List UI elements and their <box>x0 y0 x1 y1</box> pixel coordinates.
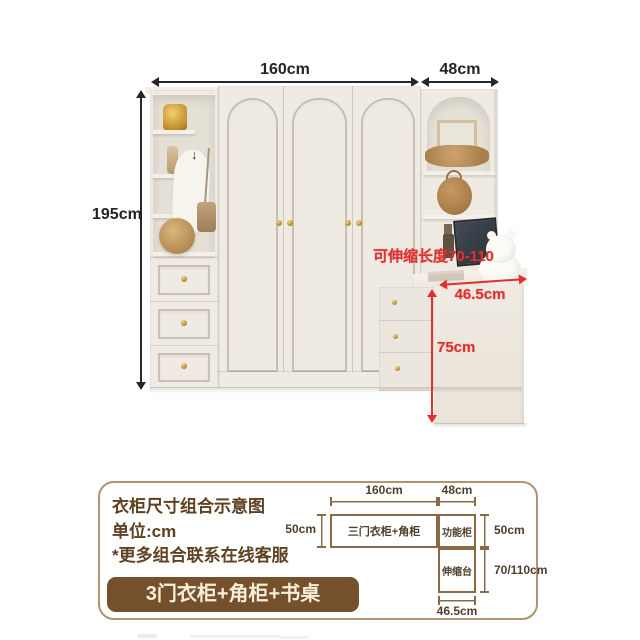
extendable-length-note: 可伸缩长度70-110 <box>373 245 494 266</box>
card-unit-line: 单位:cm <box>112 517 176 542</box>
diagram-desk-rect: 伸缩台 <box>438 548 476 593</box>
card-title: 衣柜尺寸组合示意图 <box>112 492 265 517</box>
desk-depth-label: 46.5cm <box>450 286 510 303</box>
desk-shadow <box>434 423 526 428</box>
diagram-main-width-line <box>330 497 438 506</box>
main-width-label: 160cm <box>153 61 417 79</box>
gold-knob <box>181 276 187 282</box>
display-shelf <box>153 252 215 256</box>
gold-knob <box>345 220 351 226</box>
gold-knob <box>392 300 397 305</box>
gold-knob <box>393 334 398 339</box>
display-shelf <box>153 130 195 134</box>
desk-drawer-line <box>379 352 434 353</box>
height-dimension-line <box>140 92 142 388</box>
desk-drawer-line <box>379 320 434 321</box>
diagram-wardrobe-rect: 三门衣柜+角柜 <box>330 514 438 548</box>
door-arch-panel <box>292 98 347 372</box>
side-width-dimension-line <box>423 81 497 83</box>
diagram-function-cabinet-rect: 功能柜 <box>438 514 476 548</box>
gold-knob <box>356 220 362 226</box>
gold-knob <box>287 220 293 226</box>
combo-option-button[interactable]: 3门衣柜+角柜+书桌 <box>107 577 359 612</box>
desk-height-dimension-line <box>431 291 433 421</box>
door-separator <box>352 86 353 372</box>
decor-leopard-sculpture <box>425 145 489 167</box>
cropped-next-section-artifact <box>137 634 157 638</box>
gold-knob <box>181 320 187 326</box>
door-separator <box>283 86 284 372</box>
diagram-left-height-label: 50cm <box>284 522 316 536</box>
cropped-next-section-artifact <box>190 635 282 638</box>
hook-arrow-icon: ↓ <box>191 147 198 162</box>
diagram-main-width-label: 160cm <box>330 483 438 497</box>
desk-height-label: 75cm <box>437 339 475 356</box>
decor-hanging-bag <box>197 202 216 232</box>
side-width-label: 48cm <box>423 61 497 79</box>
gold-knob <box>276 220 282 226</box>
diagram-left-height-line <box>317 514 326 548</box>
diagram-desk-width-label: 46.5cm <box>424 604 490 618</box>
diagram-right-height-line-bottom <box>480 548 489 593</box>
cropped-next-section-artifact <box>278 636 308 639</box>
decor-round-woven-bag <box>159 218 195 254</box>
door-arch-panel <box>227 98 278 372</box>
card-service-note: *更多组合联系在线客服 <box>112 541 289 566</box>
gold-knob <box>181 363 187 369</box>
gold-knob <box>395 366 400 371</box>
height-label: 195cm <box>92 206 138 224</box>
product-dimension-image: 160cm 48cm 195cm ↓ <box>0 0 640 640</box>
diagram-side-width-label: 48cm <box>424 483 490 497</box>
decor-gold-elephant <box>163 104 187 130</box>
desk-drawer-unit <box>379 287 434 391</box>
diagram-desk-height-label: 70/110cm <box>494 563 547 577</box>
diagram-side-width-line <box>438 497 476 506</box>
floor-shadow <box>150 387 522 393</box>
decor-round-bag <box>437 177 472 215</box>
main-width-dimension-line <box>153 81 417 83</box>
diagram-right-height-label-top: 50cm <box>494 523 525 537</box>
diagram-right-height-line-top <box>480 514 489 548</box>
